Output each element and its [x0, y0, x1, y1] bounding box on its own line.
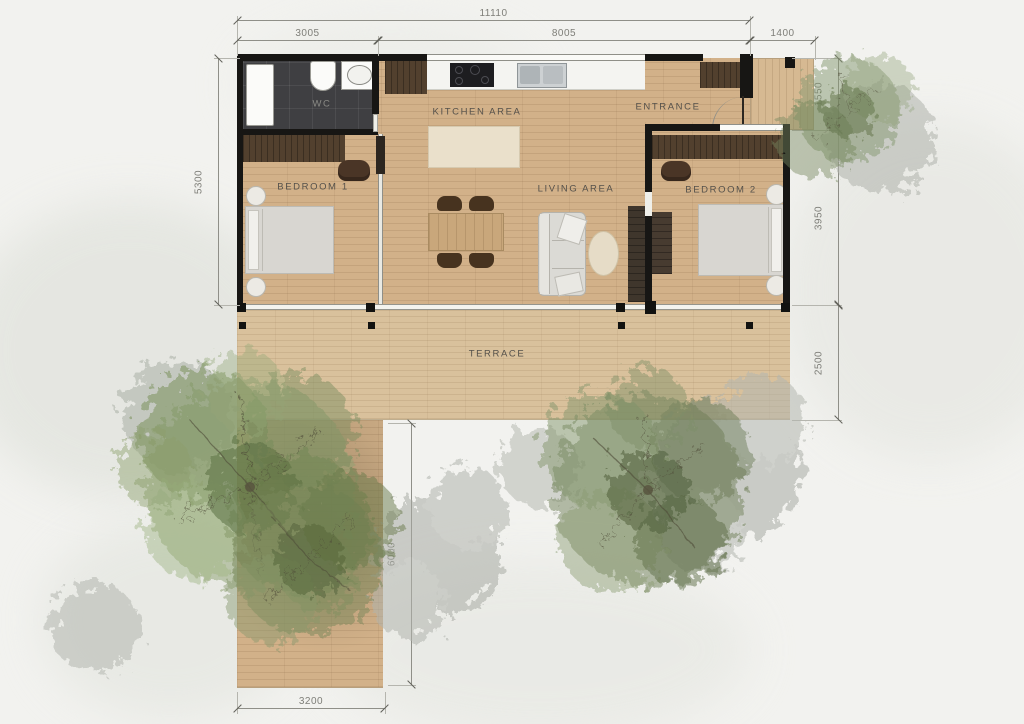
- dim-porch-depth: 1550: [838, 58, 839, 130]
- bedroom1-door-leaf: [376, 136, 385, 174]
- bedroom1-nightstand: [246, 186, 266, 206]
- bedroom2-armchair: [661, 161, 691, 181]
- terrace-deck: [237, 310, 790, 420]
- dim-wc-section: 3005: [237, 40, 378, 41]
- terrace-column: [368, 322, 375, 329]
- dim-bedroom2-depth: 3950: [838, 130, 839, 305]
- terrace-column: [239, 322, 246, 329]
- bedroom1-bed-fold: [262, 209, 263, 271]
- shower-tray: [246, 64, 274, 126]
- dim-label: 5300: [193, 169, 204, 193]
- dim-path-width: 3200: [237, 708, 385, 709]
- dining-chair: [469, 253, 494, 268]
- extension-line: [792, 420, 842, 421]
- kitchen-island: [428, 126, 520, 168]
- wall-segment: [645, 216, 652, 310]
- dim-total-width: 11110: [237, 20, 750, 21]
- extension-line: [750, 16, 751, 56]
- background-wash: [330, 560, 750, 724]
- wall-segment: [372, 54, 379, 114]
- wall-segment: [645, 124, 720, 131]
- floor-plan-canvas: 11110 3005 8005 1400 5300 1550 3950 250: [0, 0, 1024, 724]
- kitchen-window: [427, 54, 645, 61]
- terrace-column: [618, 322, 625, 329]
- dim-left-height: 5300: [218, 58, 219, 305]
- wall-segment: [783, 124, 790, 310]
- extension-line: [237, 692, 238, 714]
- bedroom2-tv-console: [652, 212, 672, 274]
- washbasin-bowl: [347, 65, 372, 85]
- wc-door-threshold: [373, 114, 378, 132]
- room-label-wc: WC: [312, 99, 331, 110]
- sink-basin: [520, 66, 540, 84]
- wall-segment: [740, 54, 753, 98]
- wall-segment: [237, 129, 378, 135]
- terrace-column: [746, 322, 753, 329]
- dim-label: 2500: [813, 350, 824, 374]
- dim-porch-width: 1400: [750, 40, 815, 41]
- terrace-post: [645, 301, 656, 314]
- dim-label: 6000: [386, 542, 397, 566]
- background-wash: [780, 120, 1024, 460]
- terrace-post: [366, 303, 375, 312]
- dim-path-length: 6000: [411, 423, 412, 685]
- dim-label: 1550: [813, 82, 824, 106]
- extension-line: [792, 305, 842, 306]
- bedroom2-door-opening: [645, 192, 652, 216]
- bedroom2-pillows: [771, 208, 782, 272]
- wall-segment: [237, 54, 427, 61]
- bedroom2-wardrobe: [652, 135, 783, 159]
- dining-chair: [437, 253, 462, 268]
- bedroom1-nightstand: [246, 277, 266, 297]
- bedroom1-armchair: [338, 160, 370, 181]
- wall-segment: [645, 124, 652, 192]
- room-label-living: LIVING AREA: [538, 184, 615, 195]
- sink-drainer: [543, 66, 563, 84]
- dim-terrace-depth: 2500: [838, 305, 839, 420]
- coffee-table-oval: [588, 231, 619, 276]
- bedroom1-pillows: [248, 210, 259, 270]
- room-label-terrace: TERRACE: [469, 349, 526, 360]
- toilet: [310, 61, 336, 91]
- cooktop-burner: [470, 65, 480, 75]
- kitchen-tall-cabinet: [385, 60, 427, 94]
- dim-label: 3200: [299, 696, 323, 707]
- entrance-porch-deck: [750, 58, 814, 130]
- bedroom2-bed-fold: [768, 207, 769, 273]
- dim-label: 3950: [813, 205, 824, 229]
- dim-label: 3005: [295, 28, 319, 39]
- dim-main-section: 8005: [378, 40, 750, 41]
- wall-segment: [237, 54, 243, 310]
- terrace-sliding-sill: [237, 304, 790, 310]
- extension-line: [385, 692, 386, 714]
- dining-chair: [437, 196, 462, 211]
- extension-line: [237, 16, 238, 56]
- bedroom2-window: [720, 124, 783, 131]
- extension-line: [792, 130, 842, 131]
- extension-line: [792, 58, 842, 59]
- dining-chair: [469, 196, 494, 211]
- living-tv-console: [628, 206, 646, 302]
- dim-label: 8005: [552, 28, 576, 39]
- sofa-backrest: [540, 214, 550, 294]
- dining-table: [428, 213, 504, 251]
- bedroom1-wardrobe: [243, 133, 345, 162]
- cooktop-burner: [481, 76, 489, 84]
- path-tree-shade: [237, 420, 383, 688]
- dim-label: 11110: [479, 8, 507, 19]
- room-label-entrance: ENTRANCE: [635, 102, 700, 113]
- cooktop-burner: [455, 66, 463, 74]
- terrace-post: [781, 303, 790, 312]
- room-label-bedroom1: BEDROOM 1: [277, 182, 348, 193]
- dim-label: 1400: [770, 28, 794, 39]
- sofa-cushion-seam: [552, 268, 584, 269]
- terrace-post: [616, 303, 625, 312]
- wall-segment: [645, 54, 703, 61]
- room-label-bedroom2: BEDROOM 2: [685, 185, 756, 196]
- room-label-kitchen: KITCHEN AREA: [433, 107, 522, 118]
- cooktop-burner: [455, 77, 463, 85]
